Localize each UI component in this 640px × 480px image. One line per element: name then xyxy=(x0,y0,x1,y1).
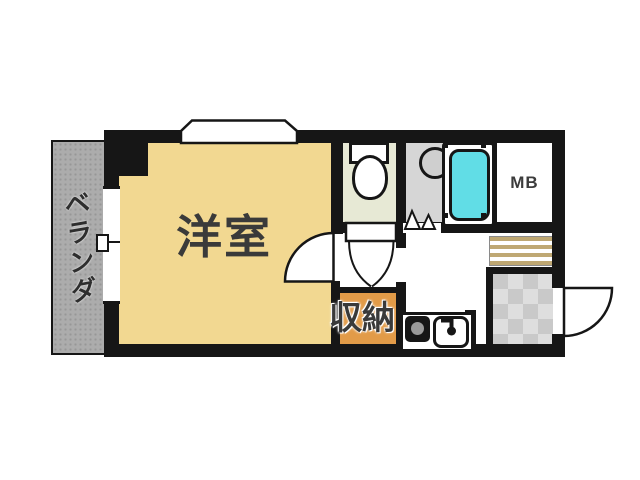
bath-door-opening xyxy=(403,223,441,233)
bathtub-icon xyxy=(449,149,490,221)
western-room-label: 洋室 xyxy=(176,214,272,260)
wall-entrance-top xyxy=(486,267,556,274)
toilet-icon xyxy=(352,155,388,200)
floor-plan: ベランダ MB xyxy=(0,0,640,480)
wall-entrance-left xyxy=(486,267,493,357)
closet-door-swing-right xyxy=(372,241,394,287)
entrance-door-arc xyxy=(564,288,612,336)
wall-right-upper xyxy=(552,130,565,288)
stove-icon xyxy=(405,316,430,342)
wall-toilet-bath xyxy=(396,143,406,223)
corner-pillar xyxy=(104,130,148,176)
wall-closet-top xyxy=(331,287,406,293)
meter-box-label: MB xyxy=(510,174,538,191)
closet-door-swing-left xyxy=(349,241,371,287)
wall-top xyxy=(104,130,565,143)
wall-bottom xyxy=(104,344,565,357)
wall-right-lower xyxy=(552,334,565,357)
wall-room-right-upper xyxy=(331,143,343,234)
storage-label: 収納 xyxy=(329,301,395,334)
stove-burner-icon xyxy=(411,322,424,335)
meter-box: MB xyxy=(497,143,552,222)
window-handle xyxy=(96,234,109,252)
entrance-tile-floor xyxy=(493,274,553,345)
laundry-area xyxy=(489,236,554,266)
sink-icon xyxy=(433,316,469,348)
